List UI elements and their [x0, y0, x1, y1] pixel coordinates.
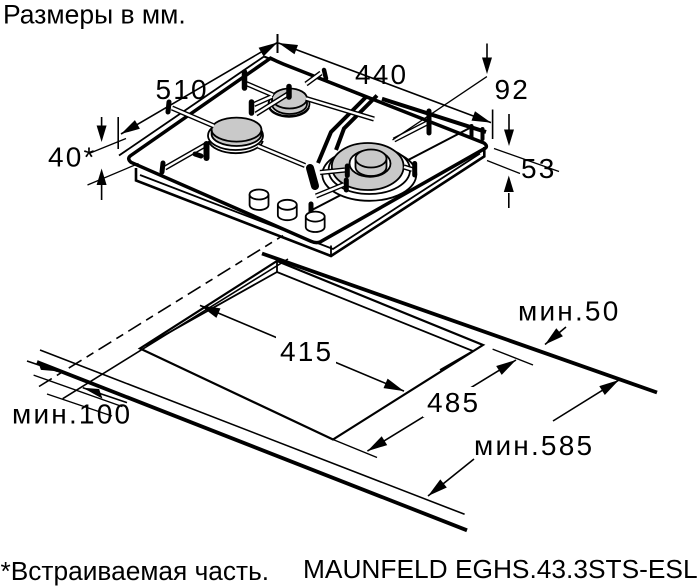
svg-text:мин.100: мин.100 [12, 399, 132, 430]
svg-text:92: 92 [495, 74, 531, 105]
svg-text:40*: 40* [48, 142, 97, 173]
svg-text:440: 440 [355, 59, 408, 90]
svg-text:*Встраиваемая часть.: *Встраиваемая часть. [1, 556, 270, 586]
svg-text:415: 415 [280, 336, 333, 367]
svg-text:MAUNFELD EGHS.43.3STS-ESL: MAUNFELD EGHS.43.3STS-ESL [303, 554, 698, 584]
svg-text:53: 53 [521, 153, 557, 184]
svg-text:485: 485 [427, 387, 480, 418]
svg-text:мин.50: мин.50 [518, 296, 620, 327]
svg-text:мин.585: мин.585 [474, 430, 594, 461]
svg-text:510: 510 [156, 74, 209, 105]
svg-text:Размеры в мм.: Размеры в мм. [3, 0, 186, 30]
